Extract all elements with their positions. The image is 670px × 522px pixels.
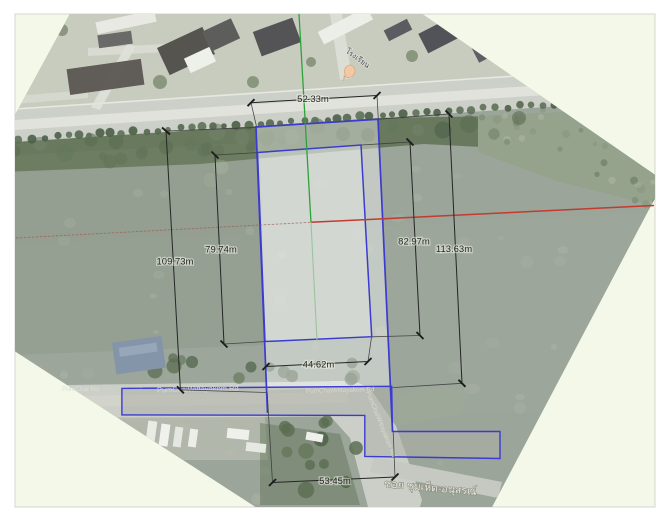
svg-text:79.74m: 79.74m [205,245,237,256]
svg-text:PumChai Rd: PumChai Rd [62,386,99,393]
svg-text:53.45m: 53.45m [319,476,351,487]
svg-text:109.73m: 109.73m [157,257,194,268]
svg-text:82.97m: 82.97m [398,237,430,248]
svg-text:113.63m: 113.63m [436,244,472,255]
svg-text:52.33m: 52.33m [297,94,329,105]
svg-text:44.62m: 44.62m [303,360,335,371]
